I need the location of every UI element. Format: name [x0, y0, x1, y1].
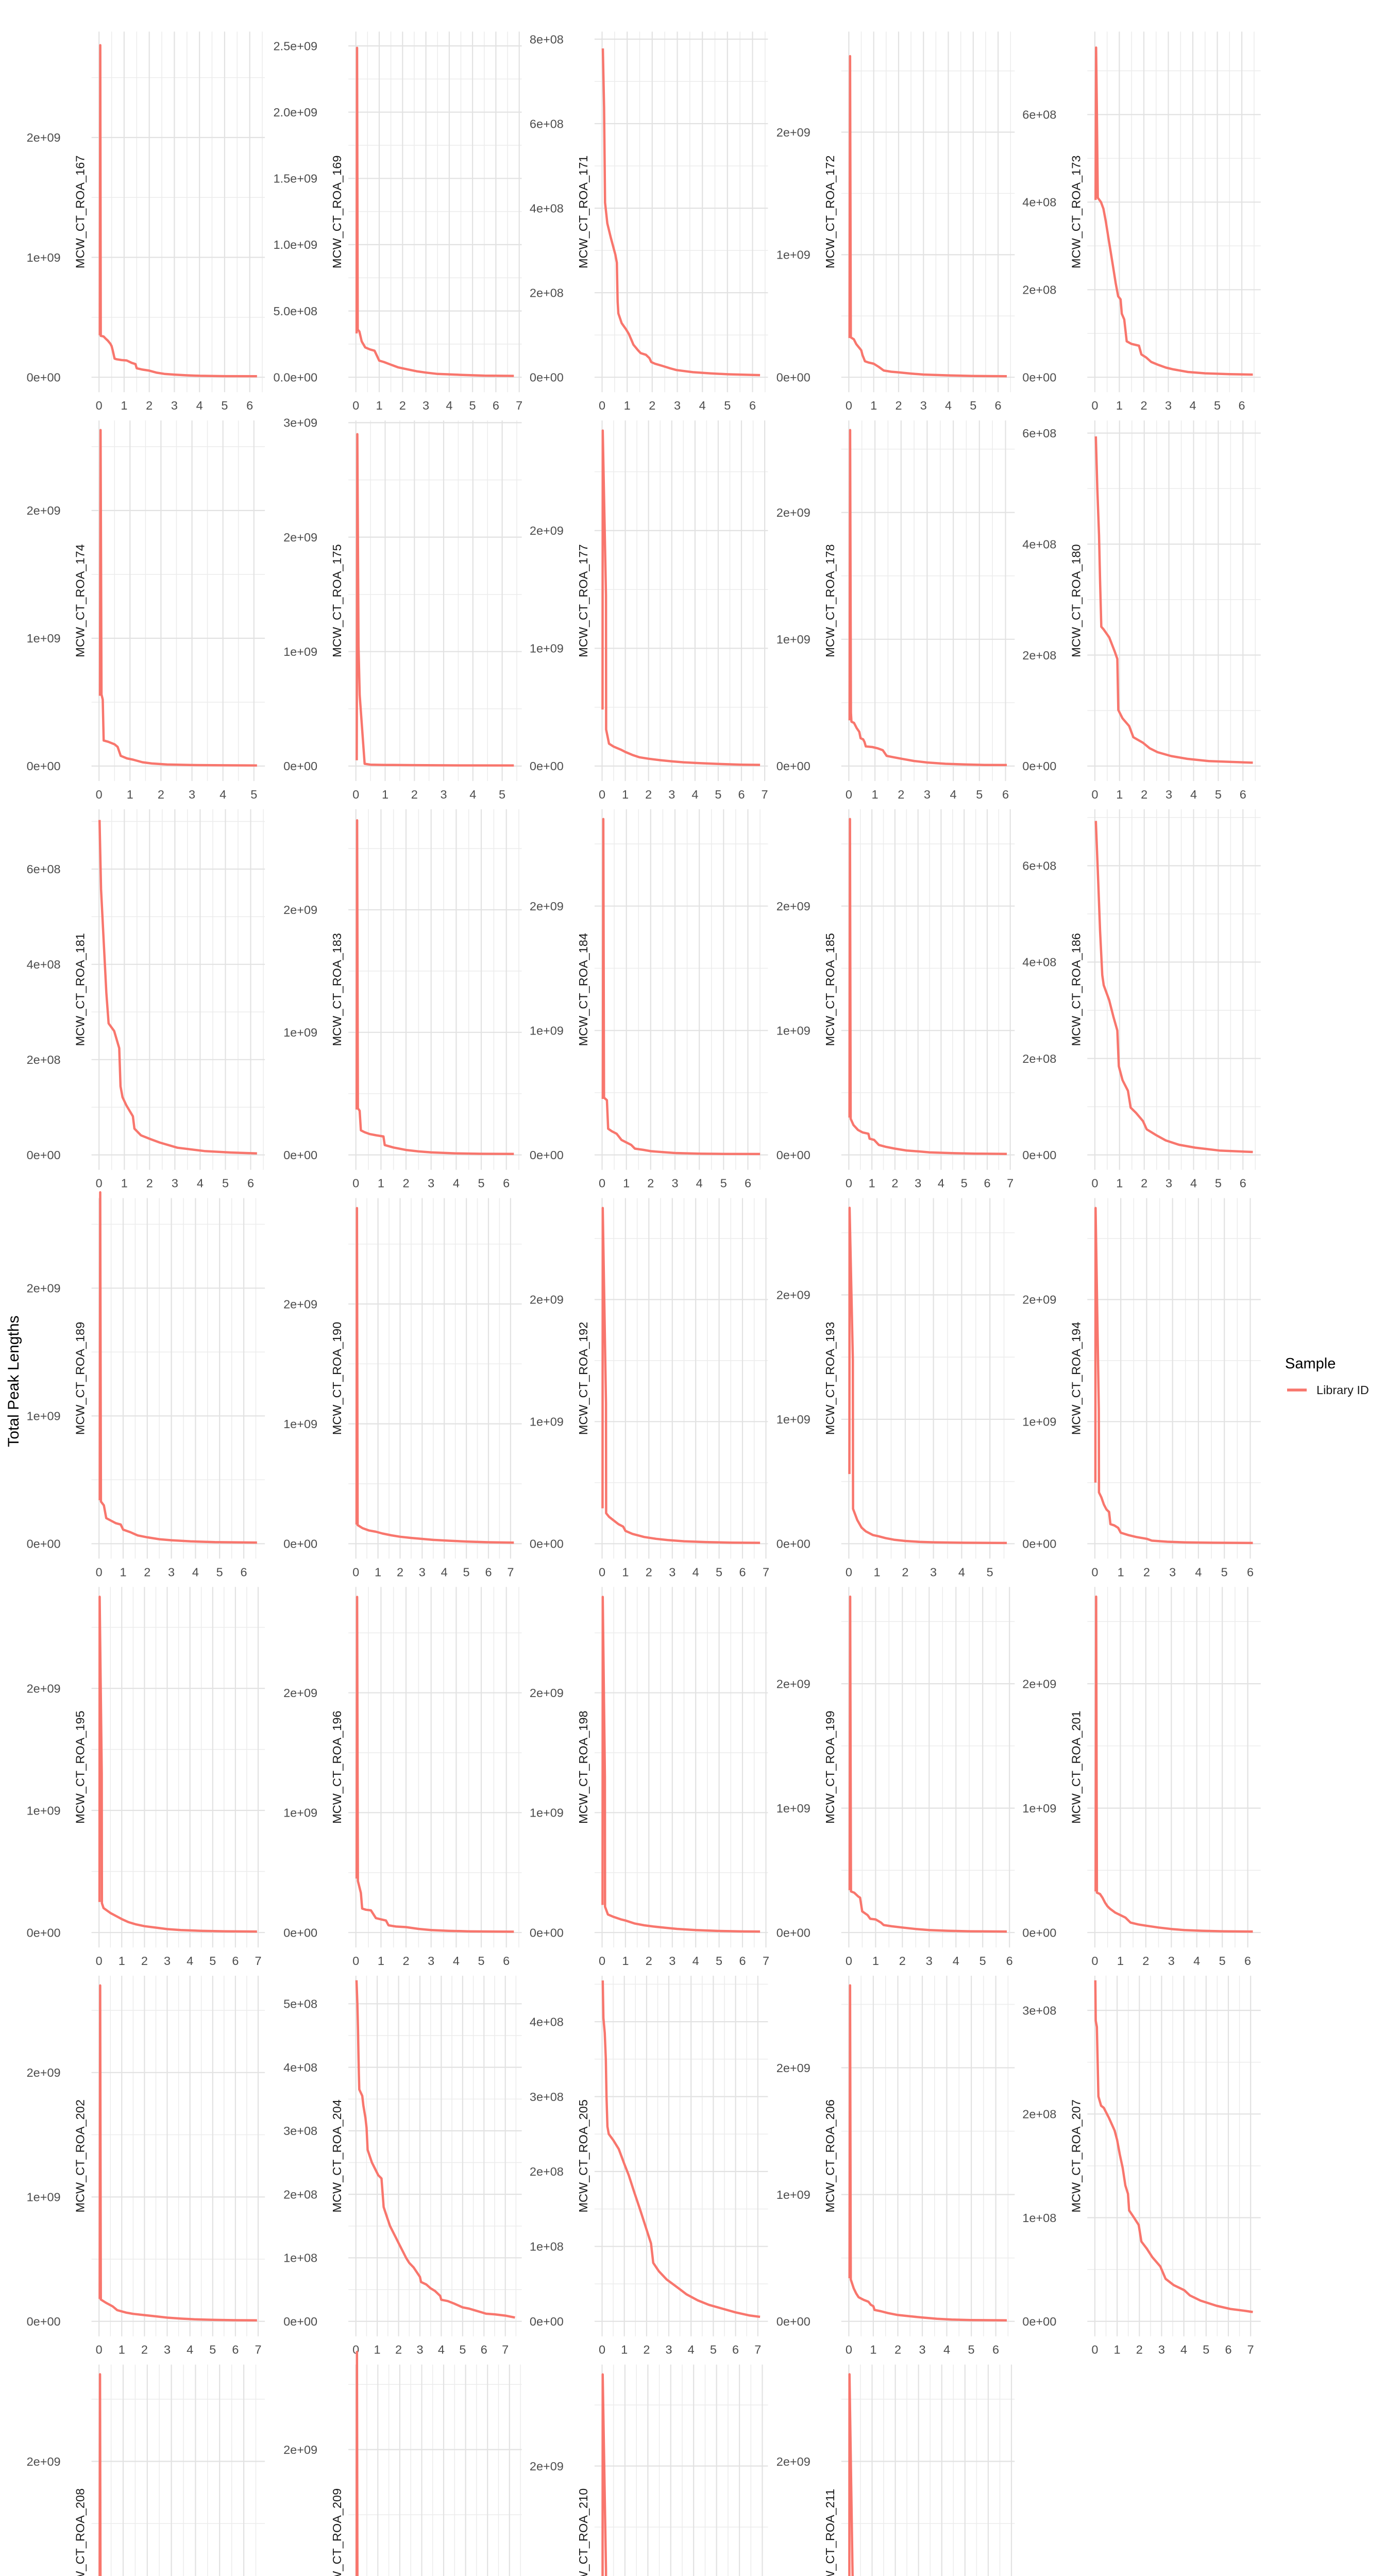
svg-text:2e+08: 2e+08: [1022, 283, 1056, 297]
svg-text:1e+09: 1e+09: [27, 251, 61, 264]
svg-text:0: 0: [846, 1565, 852, 1579]
svg-text:6: 6: [732, 2343, 739, 2357]
svg-text:1: 1: [127, 788, 133, 801]
svg-text:2: 2: [1141, 1177, 1147, 1190]
svg-text:0: 0: [96, 1954, 103, 1968]
svg-text:4: 4: [1190, 788, 1197, 801]
svg-text:MCW_CT_ROA_202: MCW_CT_ROA_202: [74, 2099, 87, 2212]
svg-text:0e+00: 0e+00: [530, 759, 564, 773]
svg-text:5: 5: [1214, 399, 1221, 412]
svg-text:0e+00: 0e+00: [27, 1537, 61, 1551]
svg-text:6: 6: [241, 1565, 247, 1579]
svg-text:0e+00: 0e+00: [530, 1926, 564, 1939]
svg-text:2e+09: 2e+09: [776, 1289, 810, 1302]
svg-text:MCW_CT_ROA_169: MCW_CT_ROA_169: [330, 156, 344, 268]
svg-text:2: 2: [1142, 1954, 1149, 1968]
svg-text:3: 3: [926, 1954, 933, 1968]
svg-text:0: 0: [599, 399, 605, 412]
svg-text:MCW_CT_ROA_206: MCW_CT_ROA_206: [823, 2099, 837, 2212]
svg-text:3: 3: [669, 1954, 675, 1968]
svg-text:0: 0: [352, 1565, 359, 1579]
svg-text:1: 1: [870, 399, 877, 412]
svg-text:3: 3: [164, 1954, 171, 1968]
svg-text:4: 4: [943, 2343, 950, 2357]
svg-text:Library ID: Library ID: [1316, 1383, 1369, 1397]
svg-text:5: 5: [724, 399, 731, 412]
svg-text:3: 3: [920, 399, 927, 412]
svg-text:2e+09: 2e+09: [530, 900, 564, 913]
svg-text:4: 4: [938, 1177, 944, 1190]
svg-text:7: 7: [1007, 1177, 1014, 1190]
svg-text:3: 3: [674, 399, 681, 412]
svg-text:6: 6: [739, 1565, 746, 1579]
svg-text:6: 6: [247, 1177, 254, 1190]
svg-text:0: 0: [1091, 1954, 1098, 1968]
svg-text:MCW_CT_ROA_201: MCW_CT_ROA_201: [1069, 1710, 1083, 1823]
svg-text:1e+09: 1e+09: [776, 633, 810, 646]
svg-text:6: 6: [749, 399, 756, 412]
svg-text:0: 0: [352, 1177, 359, 1190]
svg-text:0: 0: [1091, 2343, 1098, 2357]
svg-text:2: 2: [646, 1565, 652, 1579]
svg-text:1: 1: [1117, 1954, 1124, 1968]
svg-text:1e+08: 1e+08: [530, 2240, 564, 2253]
svg-text:0: 0: [1091, 399, 1098, 412]
svg-text:0e+00: 0e+00: [776, 1537, 810, 1551]
svg-text:2: 2: [399, 399, 406, 412]
svg-text:0: 0: [96, 1177, 103, 1190]
svg-text:5: 5: [1219, 1954, 1226, 1968]
svg-text:5: 5: [961, 1177, 968, 1190]
svg-text:2: 2: [395, 2343, 402, 2357]
svg-text:2: 2: [141, 1954, 148, 1968]
svg-text:0e+00: 0e+00: [27, 1148, 61, 1162]
svg-text:4: 4: [692, 1954, 699, 1968]
svg-text:5: 5: [499, 788, 505, 801]
svg-text:0e+00: 0e+00: [776, 759, 810, 773]
svg-text:6: 6: [493, 399, 499, 412]
svg-text:MCW_CT_ROA_199: MCW_CT_ROA_199: [823, 1710, 837, 1823]
svg-text:3: 3: [419, 1565, 426, 1579]
svg-text:0: 0: [96, 2343, 103, 2357]
svg-text:0: 0: [599, 2343, 605, 2357]
svg-text:1: 1: [872, 788, 879, 801]
svg-text:2e+09: 2e+09: [27, 2455, 61, 2468]
svg-text:5: 5: [1215, 1177, 1222, 1190]
svg-text:5: 5: [222, 1177, 229, 1190]
svg-text:1: 1: [119, 1954, 125, 1968]
svg-text:2e+09: 2e+09: [530, 1686, 564, 1700]
svg-text:MCW_CT_ROA_171: MCW_CT_ROA_171: [577, 156, 590, 268]
svg-text:4: 4: [945, 399, 952, 412]
svg-text:4e+08: 4e+08: [530, 2015, 564, 2028]
svg-text:2: 2: [1140, 399, 1147, 412]
svg-text:MCW_CT_ROA_210: MCW_CT_ROA_210: [577, 2488, 590, 2576]
svg-text:1e+08: 1e+08: [283, 2251, 317, 2265]
svg-text:6: 6: [481, 2343, 487, 2357]
svg-text:2e+09: 2e+09: [283, 903, 317, 917]
svg-text:4: 4: [950, 788, 957, 801]
svg-text:3: 3: [669, 1565, 675, 1579]
svg-text:0: 0: [599, 1954, 605, 1968]
svg-text:6: 6: [503, 1954, 510, 1968]
svg-text:2e+09: 2e+09: [776, 2455, 810, 2468]
svg-text:0: 0: [846, 1954, 852, 1968]
svg-text:3: 3: [171, 399, 178, 412]
svg-text:Total Peak Lengths: Total Peak Lengths: [5, 1315, 22, 1447]
svg-text:4: 4: [691, 788, 698, 801]
svg-text:MCW_CT_ROA_175: MCW_CT_ROA_175: [330, 544, 344, 657]
svg-text:2: 2: [141, 2343, 148, 2357]
svg-text:0e+00: 0e+00: [27, 1926, 61, 1939]
svg-text:1e+09: 1e+09: [776, 1413, 810, 1426]
svg-text:5: 5: [979, 1954, 986, 1968]
svg-text:1e+09: 1e+09: [283, 1806, 317, 1820]
svg-text:1e+09: 1e+09: [530, 1806, 564, 1820]
svg-text:3: 3: [416, 2343, 423, 2357]
svg-text:4: 4: [1180, 2343, 1187, 2357]
svg-text:3: 3: [440, 788, 447, 801]
svg-text:3: 3: [915, 1177, 921, 1190]
svg-text:2: 2: [402, 1954, 409, 1968]
svg-text:2: 2: [645, 788, 652, 801]
svg-text:1: 1: [1118, 1565, 1124, 1579]
svg-text:2e+09: 2e+09: [27, 2066, 61, 2079]
svg-text:3e+08: 3e+08: [283, 2124, 317, 2138]
svg-text:3: 3: [1166, 1177, 1172, 1190]
svg-text:0e+00: 0e+00: [776, 371, 810, 384]
svg-text:2: 2: [647, 1177, 654, 1190]
svg-text:1e+09: 1e+09: [776, 1024, 810, 1038]
svg-text:MCW_CT_ROA_208: MCW_CT_ROA_208: [74, 2488, 87, 2576]
svg-text:2e+09: 2e+09: [776, 1677, 810, 1690]
svg-text:1: 1: [1116, 399, 1123, 412]
svg-text:3e+08: 3e+08: [530, 2090, 564, 2104]
svg-text:3: 3: [924, 788, 931, 801]
svg-text:5: 5: [250, 788, 257, 801]
svg-text:0e+00: 0e+00: [27, 759, 61, 773]
svg-text:4: 4: [688, 2343, 695, 2357]
svg-text:5: 5: [1221, 1565, 1228, 1579]
svg-text:MCW_CT_ROA_183: MCW_CT_ROA_183: [330, 933, 344, 1046]
svg-text:5: 5: [1203, 2343, 1209, 2357]
svg-text:0: 0: [846, 788, 852, 801]
svg-text:4: 4: [441, 1565, 448, 1579]
svg-text:1e+09: 1e+09: [530, 642, 564, 655]
svg-text:MCW_CT_ROA_195: MCW_CT_ROA_195: [74, 1710, 87, 1823]
svg-text:MCW_CT_ROA_205: MCW_CT_ROA_205: [577, 2099, 590, 2212]
svg-text:1: 1: [624, 399, 631, 412]
svg-text:2e+09: 2e+09: [530, 524, 564, 537]
svg-text:2e+08: 2e+08: [1022, 649, 1056, 662]
svg-text:5e+08: 5e+08: [283, 1997, 317, 2011]
svg-text:2e+09: 2e+09: [776, 2061, 810, 2075]
svg-text:2e+08: 2e+08: [530, 286, 564, 299]
svg-text:0: 0: [599, 1565, 605, 1579]
svg-text:4: 4: [958, 1565, 965, 1579]
svg-text:1e+09: 1e+09: [776, 248, 810, 262]
svg-text:1: 1: [374, 2343, 381, 2357]
svg-text:Sample: Sample: [1285, 1355, 1336, 1372]
svg-text:6: 6: [995, 399, 1002, 412]
svg-text:1.0e+09: 1.0e+09: [273, 238, 317, 251]
svg-text:7: 7: [507, 1565, 514, 1579]
svg-text:1e+09: 1e+09: [530, 1415, 564, 1429]
svg-text:2: 2: [1141, 788, 1147, 801]
svg-text:4: 4: [453, 1177, 460, 1190]
svg-text:MCW_CT_ROA_186: MCW_CT_ROA_186: [1069, 933, 1083, 1046]
svg-text:3: 3: [428, 1954, 434, 1968]
svg-text:6: 6: [739, 1954, 746, 1968]
svg-text:2: 2: [1143, 1565, 1150, 1579]
svg-text:8e+08: 8e+08: [530, 32, 564, 46]
svg-text:4: 4: [1193, 1954, 1200, 1968]
svg-text:2e+09: 2e+09: [283, 1297, 317, 1311]
svg-text:0: 0: [1091, 788, 1098, 801]
svg-text:7: 7: [1247, 2343, 1254, 2357]
svg-text:6: 6: [232, 1954, 239, 1968]
svg-text:4e+08: 4e+08: [1022, 196, 1056, 209]
svg-text:2: 2: [158, 788, 164, 801]
svg-text:1: 1: [376, 399, 382, 412]
svg-text:6: 6: [1240, 788, 1246, 801]
svg-text:6: 6: [1240, 1177, 1246, 1190]
svg-text:3e+08: 3e+08: [1022, 2004, 1056, 2017]
svg-text:MCW_CT_ROA_167: MCW_CT_ROA_167: [74, 156, 87, 268]
svg-text:1e+09: 1e+09: [283, 1026, 317, 1039]
svg-text:0: 0: [846, 2343, 852, 2357]
svg-text:2.5e+09: 2.5e+09: [273, 39, 317, 53]
svg-text:0: 0: [846, 1177, 852, 1190]
svg-text:MCW_CT_ROA_173: MCW_CT_ROA_173: [1069, 156, 1083, 268]
svg-text:5: 5: [987, 1565, 993, 1579]
svg-text:4: 4: [219, 788, 226, 801]
svg-text:1e+09: 1e+09: [776, 2188, 810, 2201]
svg-text:2: 2: [402, 1177, 409, 1190]
svg-text:MCW_CT_ROA_209: MCW_CT_ROA_209: [330, 2488, 344, 2576]
svg-text:5: 5: [216, 1565, 223, 1579]
svg-text:0e+00: 0e+00: [1022, 1926, 1056, 1939]
svg-text:1: 1: [872, 1954, 879, 1968]
svg-text:2: 2: [902, 1565, 908, 1579]
svg-text:1e+09: 1e+09: [1022, 1415, 1056, 1429]
svg-text:1e+09: 1e+09: [1022, 1802, 1056, 1815]
svg-text:2e+09: 2e+09: [530, 2460, 564, 2473]
svg-text:2: 2: [649, 399, 655, 412]
svg-text:6: 6: [232, 2343, 239, 2357]
svg-text:2e+09: 2e+09: [1022, 1677, 1056, 1690]
svg-text:2e+09: 2e+09: [776, 506, 810, 519]
svg-text:0: 0: [846, 399, 852, 412]
svg-text:0: 0: [352, 788, 359, 801]
svg-text:1: 1: [1116, 1177, 1123, 1190]
svg-text:2e+09: 2e+09: [27, 1682, 61, 1695]
svg-text:1: 1: [382, 788, 389, 801]
svg-text:4e+08: 4e+08: [1022, 537, 1056, 551]
svg-text:6: 6: [738, 788, 745, 801]
svg-text:3: 3: [1158, 2343, 1165, 2357]
svg-text:2e+09: 2e+09: [1022, 1293, 1056, 1307]
svg-text:1: 1: [378, 1177, 384, 1190]
svg-text:MCW_CT_ROA_194: MCW_CT_ROA_194: [1069, 1322, 1083, 1435]
svg-text:0.0e+00: 0.0e+00: [273, 371, 317, 384]
svg-text:4: 4: [187, 2343, 193, 2357]
svg-text:3: 3: [172, 1177, 178, 1190]
svg-text:4: 4: [1189, 399, 1196, 412]
svg-text:7: 7: [754, 2343, 761, 2357]
svg-text:4e+08: 4e+08: [27, 958, 61, 971]
svg-text:2: 2: [1136, 2343, 1143, 2357]
svg-text:0e+00: 0e+00: [283, 1537, 317, 1551]
svg-text:2e+09: 2e+09: [27, 504, 61, 517]
svg-text:0: 0: [599, 788, 605, 801]
svg-text:3: 3: [423, 399, 429, 412]
svg-text:6e+08: 6e+08: [1022, 859, 1056, 873]
svg-text:1: 1: [874, 1565, 881, 1579]
svg-text:1e+09: 1e+09: [283, 2573, 317, 2576]
svg-text:1: 1: [621, 2343, 628, 2357]
svg-text:0e+00: 0e+00: [27, 371, 61, 384]
svg-text:3: 3: [428, 1177, 434, 1190]
svg-text:5: 5: [469, 399, 476, 412]
svg-text:5: 5: [710, 2343, 717, 2357]
svg-text:2e+09: 2e+09: [776, 900, 810, 913]
svg-text:2e+08: 2e+08: [1022, 1052, 1056, 1065]
svg-text:MCW_CT_ROA_180: MCW_CT_ROA_180: [1069, 544, 1083, 657]
svg-text:7: 7: [763, 1954, 769, 1968]
svg-text:MCW_CT_ROA_204: MCW_CT_ROA_204: [330, 2099, 344, 2212]
svg-text:2: 2: [643, 2343, 650, 2357]
svg-text:6: 6: [984, 1177, 990, 1190]
svg-text:1e+09: 1e+09: [27, 632, 61, 645]
svg-text:5: 5: [976, 788, 983, 801]
svg-text:0e+00: 0e+00: [530, 371, 564, 384]
svg-text:0e+00: 0e+00: [776, 1148, 810, 1162]
svg-text:0e+00: 0e+00: [283, 2315, 317, 2328]
svg-text:4: 4: [699, 399, 706, 412]
svg-text:6: 6: [1002, 788, 1009, 801]
svg-text:3: 3: [1166, 788, 1172, 801]
svg-text:2e+09: 2e+09: [27, 1282, 61, 1295]
svg-text:5: 5: [209, 2343, 216, 2357]
svg-text:0e+00: 0e+00: [283, 1926, 317, 1939]
svg-text:5.0e+08: 5.0e+08: [273, 304, 317, 318]
svg-text:7: 7: [502, 2343, 509, 2357]
svg-text:1: 1: [1116, 788, 1123, 801]
svg-text:MCW_CT_ROA_174: MCW_CT_ROA_174: [74, 544, 87, 657]
svg-text:7: 7: [255, 1954, 261, 1968]
svg-text:2e+09: 2e+09: [776, 126, 810, 139]
svg-text:1e+09: 1e+09: [27, 2191, 61, 2204]
svg-text:2: 2: [895, 399, 902, 412]
svg-text:2e+09: 2e+09: [27, 131, 61, 144]
svg-text:0e+00: 0e+00: [1022, 759, 1056, 773]
svg-text:3: 3: [1168, 1954, 1175, 1968]
svg-text:6: 6: [992, 2343, 999, 2357]
svg-text:6: 6: [246, 399, 253, 412]
svg-text:2: 2: [397, 1565, 403, 1579]
svg-text:0: 0: [599, 1177, 605, 1190]
svg-text:3: 3: [164, 2343, 171, 2357]
svg-text:5: 5: [478, 1954, 484, 1968]
svg-text:2: 2: [894, 2343, 901, 2357]
svg-text:MCW_CT_ROA_185: MCW_CT_ROA_185: [823, 933, 837, 1046]
svg-text:1e+09: 1e+09: [27, 1804, 61, 1817]
svg-text:0: 0: [352, 399, 359, 412]
svg-text:0e+00: 0e+00: [1022, 1148, 1056, 1162]
svg-text:1e+09: 1e+09: [283, 645, 317, 658]
svg-text:4: 4: [469, 788, 476, 801]
svg-text:0: 0: [352, 1954, 359, 1968]
svg-text:4: 4: [197, 1177, 204, 1190]
svg-text:1: 1: [622, 1954, 629, 1968]
svg-text:4: 4: [453, 1954, 460, 1968]
svg-text:0e+00: 0e+00: [1022, 1537, 1056, 1551]
svg-text:2e+08: 2e+08: [1022, 2108, 1056, 2121]
svg-text:2e+08: 2e+08: [530, 2165, 564, 2178]
svg-text:0e+00: 0e+00: [1022, 2315, 1056, 2328]
svg-text:4: 4: [696, 1177, 703, 1190]
svg-text:4: 4: [196, 399, 203, 412]
svg-text:5: 5: [459, 2343, 466, 2357]
svg-text:0e+00: 0e+00: [776, 2315, 810, 2328]
svg-text:2.0e+09: 2.0e+09: [273, 106, 317, 119]
svg-text:3: 3: [1165, 399, 1172, 412]
svg-text:4: 4: [438, 2343, 445, 2357]
svg-text:6e+08: 6e+08: [1022, 108, 1056, 122]
svg-text:5: 5: [968, 2343, 975, 2357]
svg-text:MCW_CT_ROA_190: MCW_CT_ROA_190: [330, 1322, 344, 1435]
svg-text:3: 3: [919, 2343, 925, 2357]
svg-text:4e+08: 4e+08: [1022, 956, 1056, 969]
svg-text:MCW_CT_ROA_178: MCW_CT_ROA_178: [823, 544, 837, 657]
svg-text:MCW_CT_ROA_172: MCW_CT_ROA_172: [823, 156, 837, 268]
svg-text:6: 6: [503, 1177, 510, 1190]
svg-text:5: 5: [478, 1177, 484, 1190]
svg-text:1: 1: [623, 1177, 630, 1190]
svg-text:2e+09: 2e+09: [530, 1293, 564, 1307]
svg-text:6: 6: [1006, 1954, 1013, 1968]
svg-text:3: 3: [189, 788, 195, 801]
svg-text:3e+09: 3e+09: [283, 416, 317, 430]
svg-text:MCW_CT_ROA_211: MCW_CT_ROA_211: [823, 2489, 837, 2576]
svg-text:4: 4: [187, 1954, 193, 1968]
svg-text:1: 1: [121, 399, 127, 412]
svg-text:4: 4: [446, 399, 452, 412]
svg-text:4e+08: 4e+08: [530, 201, 564, 215]
svg-text:2: 2: [146, 399, 153, 412]
svg-text:1: 1: [622, 1565, 629, 1579]
svg-text:1: 1: [870, 2343, 876, 2357]
svg-text:5: 5: [715, 788, 721, 801]
svg-text:3: 3: [930, 1565, 937, 1579]
svg-text:2: 2: [899, 1954, 906, 1968]
svg-text:7: 7: [762, 788, 768, 801]
svg-text:3: 3: [671, 1177, 678, 1190]
svg-text:0: 0: [96, 788, 103, 801]
svg-text:1.5e+09: 1.5e+09: [273, 172, 317, 185]
svg-text:1: 1: [375, 1565, 381, 1579]
svg-text:0e+00: 0e+00: [283, 759, 317, 773]
svg-text:6: 6: [1239, 399, 1245, 412]
svg-text:2: 2: [891, 1177, 898, 1190]
svg-text:MCW_CT_ROA_193: MCW_CT_ROA_193: [823, 1322, 837, 1435]
svg-text:2: 2: [898, 788, 904, 801]
svg-text:2: 2: [144, 1565, 150, 1579]
svg-text:5: 5: [720, 1177, 727, 1190]
svg-text:3: 3: [168, 1565, 175, 1579]
svg-text:2e+09: 2e+09: [283, 531, 317, 544]
